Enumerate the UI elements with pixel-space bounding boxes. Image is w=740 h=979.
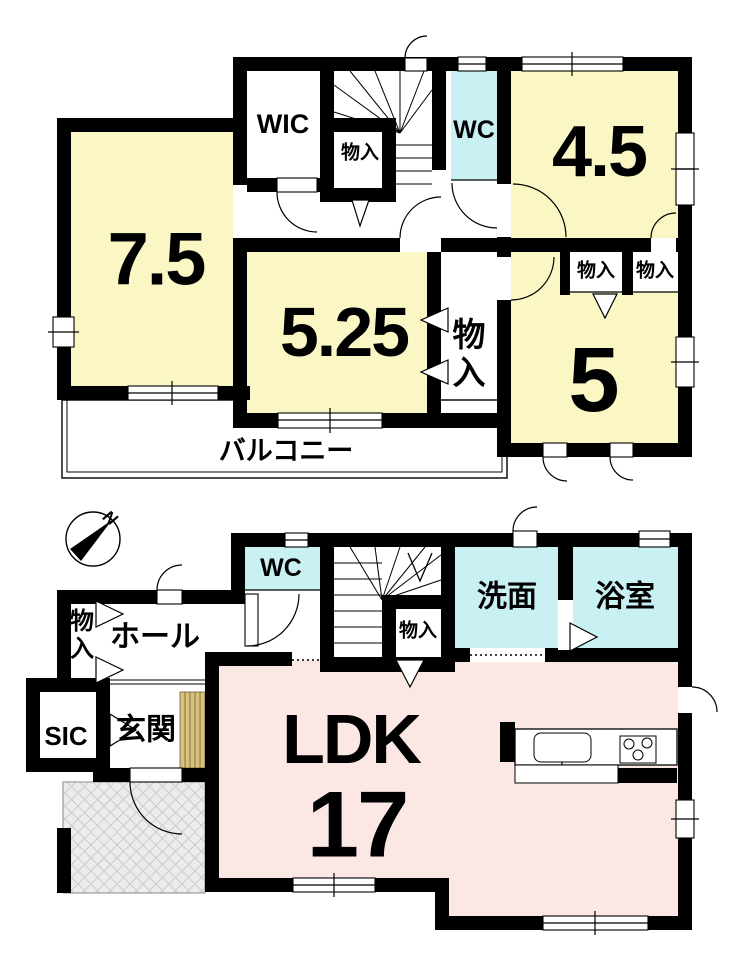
porch xyxy=(63,782,205,893)
bathroom-label: 浴室 xyxy=(595,580,655,614)
closet-d-label: 物入 xyxy=(636,259,674,282)
room-5-label: 5 xyxy=(568,329,617,431)
ldk-size-label: 17 xyxy=(307,772,408,877)
room-5-25-label: 5.25 xyxy=(280,293,408,371)
window-top-wc xyxy=(458,57,486,71)
closet-hall-label: 物入 xyxy=(70,608,94,663)
floor-plan: WIC 物入 WC 4.5 7.5 5.25 物入 物入 物入 5 バルコニー … xyxy=(0,0,740,979)
closet-stairs-label: 物入 xyxy=(399,619,437,642)
closet-vertical-label: 物入 xyxy=(453,316,486,391)
hall-label: ホール xyxy=(110,621,200,654)
balcony-label: バルコニー xyxy=(219,436,353,466)
closet-a-label: 物入 xyxy=(341,141,379,164)
ldk-label: LDK xyxy=(282,700,421,778)
entrance-step xyxy=(180,692,205,768)
window-top-bath xyxy=(639,531,670,547)
closet-c-label: 物入 xyxy=(577,259,615,282)
entrance-label: 玄関 xyxy=(116,713,176,747)
wc-1f-label: WC xyxy=(260,554,302,582)
kitchen-sink xyxy=(534,733,591,762)
sic-label: SIC xyxy=(44,721,88,751)
wc-2f-label: WC xyxy=(453,116,495,144)
room-7-5-label: 7.5 xyxy=(108,218,206,301)
second-floor: WIC 物入 WC 4.5 7.5 5.25 物入 物入 物入 5 バルコニー xyxy=(48,36,699,481)
room-4-5-label: 4.5 xyxy=(552,112,647,192)
first-floor: N xyxy=(26,507,717,935)
washroom-label: 洗面 xyxy=(477,581,537,614)
wic-label: WIC xyxy=(257,109,309,139)
window-left-75 xyxy=(48,317,79,347)
window-top-wc1f xyxy=(285,533,308,547)
compass-icon: N xyxy=(66,507,121,566)
floor-plan-canvas: WIC 物入 WC 4.5 7.5 5.25 物入 物入 物入 5 バルコニー … xyxy=(0,0,740,979)
